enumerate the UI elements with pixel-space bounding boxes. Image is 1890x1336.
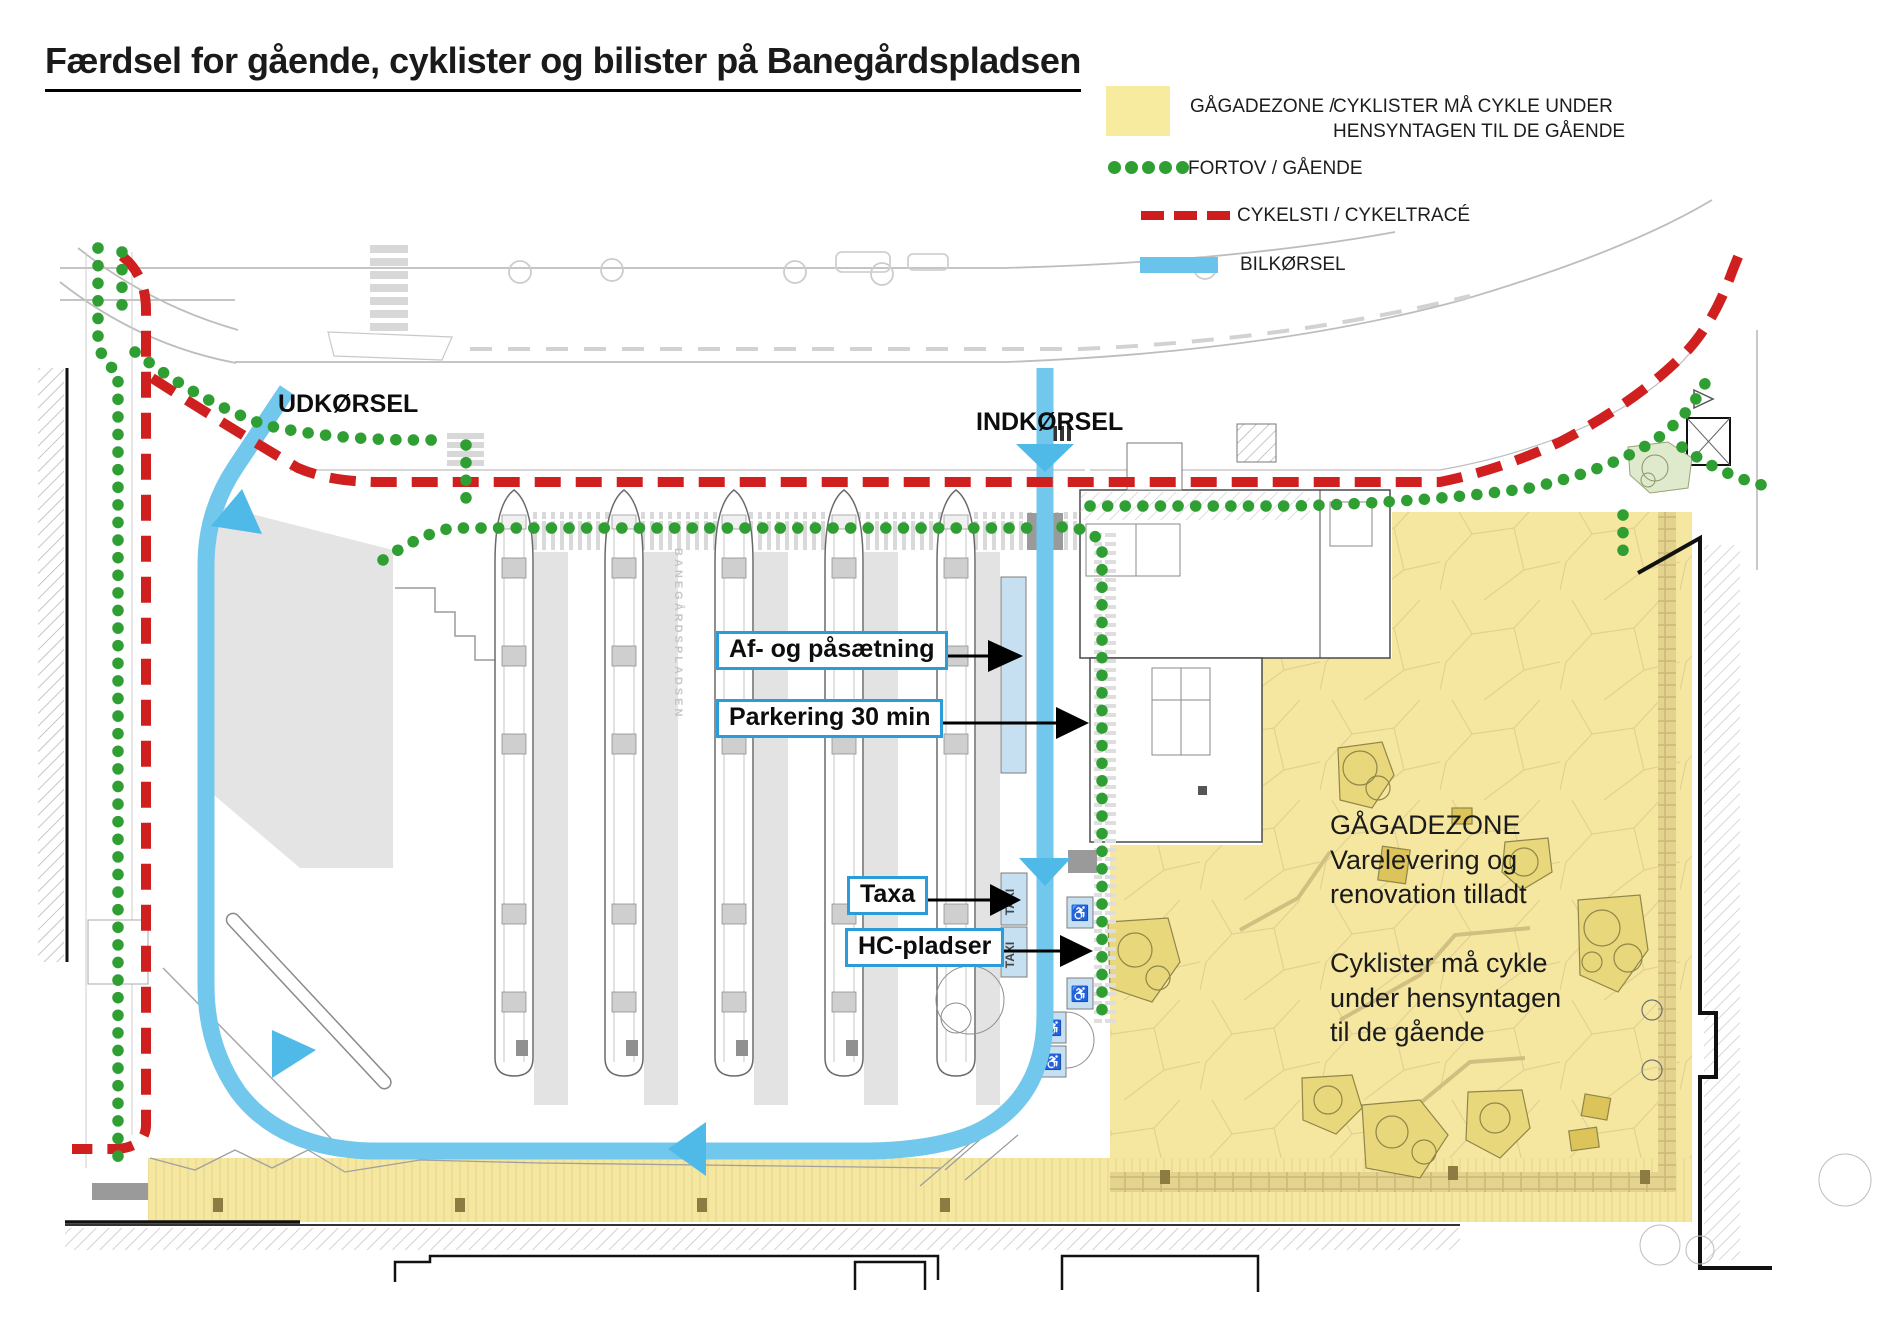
callout-taxi: Taxa [847,876,928,915]
hc-bay-icon: ♿ [1071,985,1090,1003]
callout-hc: HC-pladser [845,928,1004,967]
callout-parking: Parkering 30 min [716,699,943,738]
legend-label-zone-cyclists: CYKLISTER MÅ CYKLE UNDER HENSYNTAGEN TIL… [1333,95,1625,144]
legend-label-zone: GÅGADEZONE / [1190,95,1335,120]
legend-label-sidewalk: FORTOV / GÅENDE [1188,157,1363,182]
legend-swatch-sidewalk [1108,161,1189,174]
hc-bay-icon: ♿ [1071,904,1090,922]
platform [937,490,975,1076]
crosswalk-top [370,245,408,331]
traffic-plan-page: TAXI TAXI ♿ ♿ ♿ ♿ [0,0,1890,1336]
legend-swatch-car [1140,257,1218,273]
legend-swatch-pedestrian-zone [1106,86,1170,136]
platform [825,490,863,1076]
legend-swatch-cycle [1141,211,1230,220]
legend-label-car: BILKØRSEL [1240,253,1346,278]
legend-label-cycle: CYKELSTI / CYKELTRACÉ [1237,204,1470,229]
page-title: Færdsel for gående, cyklister og biliste… [45,40,1081,92]
platform [495,490,533,1076]
platform [605,490,643,1076]
exit-label: UDKØRSEL [278,390,418,419]
left-boundary [38,252,154,1200]
platform [715,490,753,1076]
taxi-bay-label: TAXI [1003,942,1017,968]
callout-dropoff: Af- og påsætning [716,631,948,670]
street-name-watermark: BANEGÅRDSPLADSEN [672,548,684,719]
plaza [163,503,515,1185]
bottom-boundary [65,1222,1460,1292]
entrance-label: INDKØRSEL [976,408,1123,437]
pedestrian-zone-text: GÅGADEZONE Varelevering og renovation ti… [1330,808,1561,1050]
